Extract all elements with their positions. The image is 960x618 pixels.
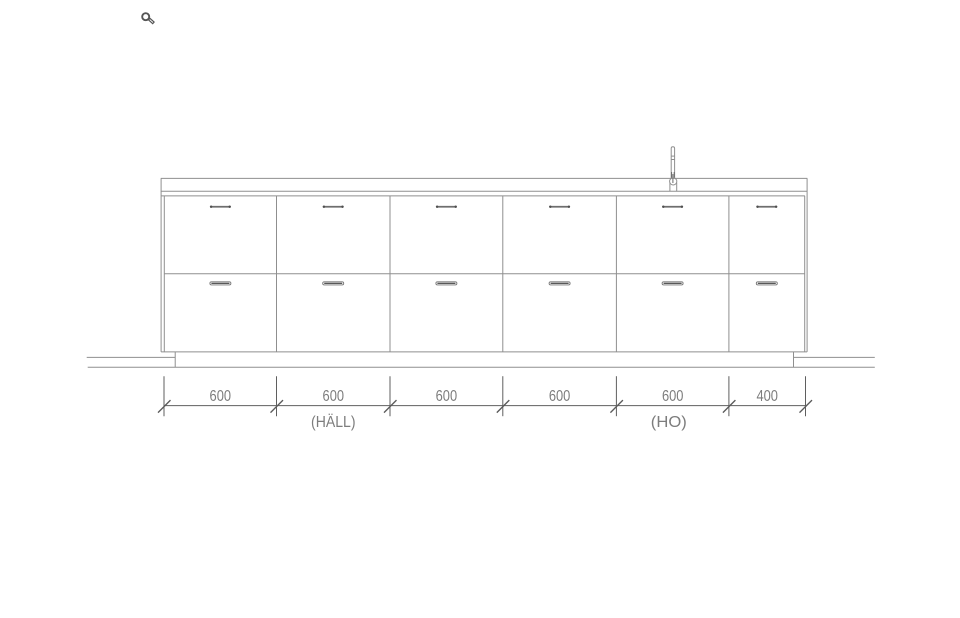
svg-text:600: 600 [662, 388, 684, 405]
svg-text:(HÄLL): (HÄLL) [311, 413, 356, 431]
svg-text:600: 600 [323, 388, 345, 405]
svg-text:600: 600 [436, 388, 458, 405]
svg-text:600: 600 [549, 388, 571, 405]
svg-text:400: 400 [756, 388, 778, 405]
svg-text:600: 600 [210, 388, 232, 405]
svg-text:(HO): (HO) [651, 414, 687, 431]
